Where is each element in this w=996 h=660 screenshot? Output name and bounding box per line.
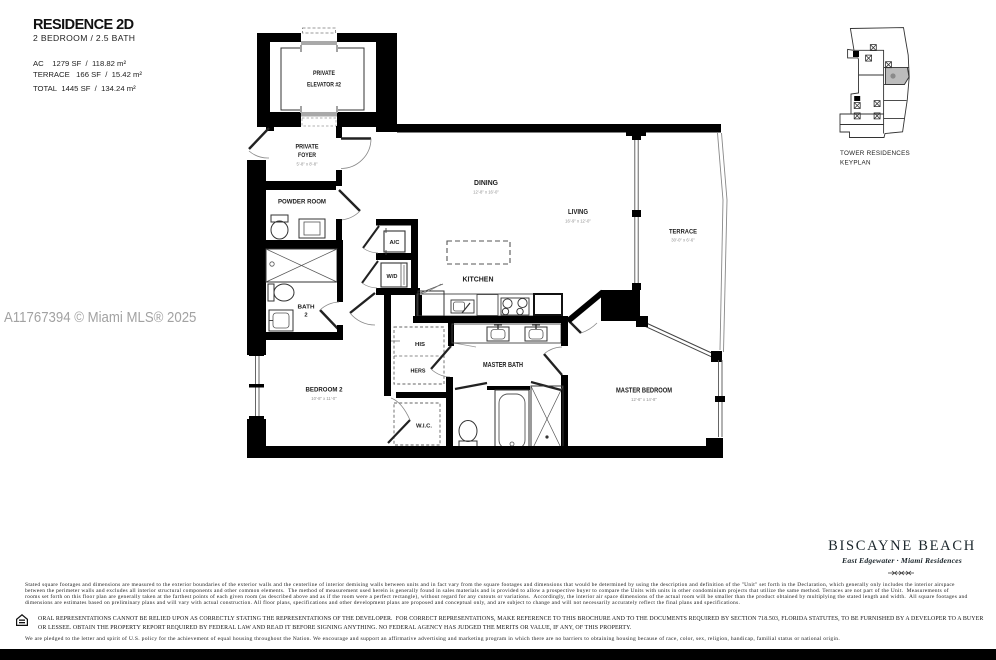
svg-text:10'-8" x 11'-0": 10'-8" x 11'-0" — [311, 396, 337, 401]
svg-text:MASTER BATH: MASTER BATH — [483, 362, 523, 369]
svg-text:PRIVATE: PRIVATE — [296, 145, 319, 151]
svg-text:W.I.C.: W.I.C. — [416, 424, 433, 430]
svg-text:16'-9" x 12'-0": 16'-9" x 12'-0" — [565, 219, 591, 224]
svg-text:POWDER ROOM: POWDER ROOM — [278, 200, 326, 206]
svg-text:PRIVATE: PRIVATE — [313, 70, 336, 77]
svg-text:BEDROOM 2: BEDROOM 2 — [306, 387, 343, 394]
svg-text:12'-6" x 14'-8": 12'-6" x 14'-8" — [631, 397, 657, 402]
svg-text:30'-0" x 6'-6": 30'-0" x 6'-6" — [671, 238, 695, 243]
svg-text:HERS: HERS — [411, 369, 426, 375]
svg-text:TOWER RESIDENCES: TOWER RESIDENCES — [840, 150, 910, 157]
svg-text:A/C: A/C — [390, 240, 400, 246]
svg-text:2: 2 — [304, 313, 307, 319]
svg-text:ELEVATOR #2: ELEVATOR #2 — [307, 82, 341, 89]
svg-text:KITCHEN: KITCHEN — [463, 277, 494, 284]
svg-text:TERRACE: TERRACE — [669, 229, 698, 236]
svg-text:W/D: W/D — [387, 274, 398, 280]
svg-text:KEYPLAN: KEYPLAN — [840, 160, 871, 167]
svg-text:12'-8" x 16'-0": 12'-8" x 16'-0" — [473, 190, 499, 195]
svg-text:HIS: HIS — [415, 342, 426, 348]
svg-text:DINING: DINING — [474, 180, 499, 187]
svg-text:5'-8" x 8'-8": 5'-8" x 8'-8" — [296, 162, 318, 167]
svg-text:FOYER: FOYER — [298, 153, 317, 159]
svg-text:MASTER BEDROOM: MASTER BEDROOM — [616, 388, 672, 395]
svg-text:BATH: BATH — [298, 305, 315, 311]
svg-text:LIVING: LIVING — [568, 209, 588, 216]
